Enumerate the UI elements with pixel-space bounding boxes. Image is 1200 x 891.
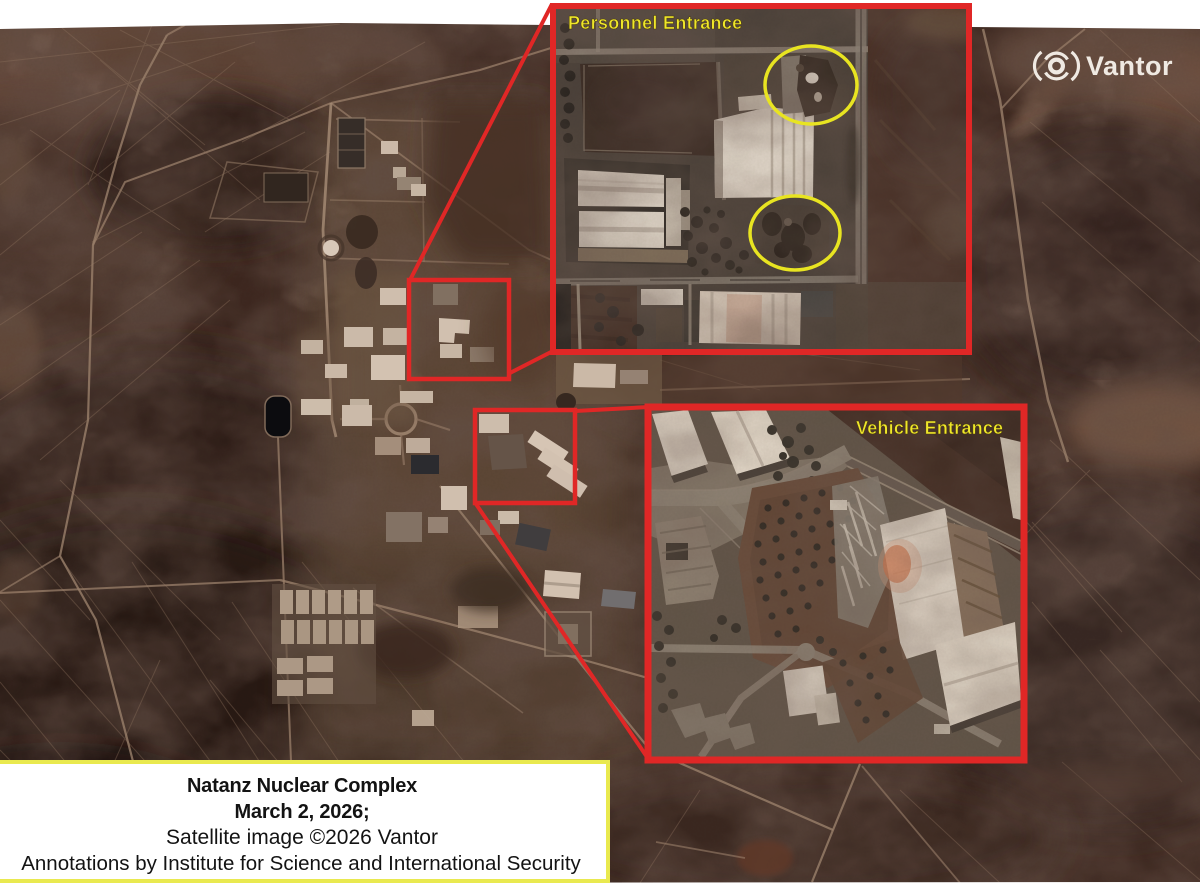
svg-text:Vehicle Entrance: Vehicle Entrance (856, 418, 1003, 438)
svg-text:Natanz Nuclear Complex: Natanz Nuclear Complex (187, 775, 417, 797)
svg-text:March 2, 2026;: March 2, 2026; (234, 801, 369, 823)
svg-text:Satellite image ©2026 Vantor: Satellite image ©2026 Vantor (166, 826, 438, 849)
svg-text:Vantor: Vantor (1086, 51, 1173, 81)
svg-text:Annotations by Institute for S: Annotations by Institute for Science and… (21, 852, 581, 875)
svg-text:Personnel Entrance: Personnel Entrance (568, 13, 742, 33)
